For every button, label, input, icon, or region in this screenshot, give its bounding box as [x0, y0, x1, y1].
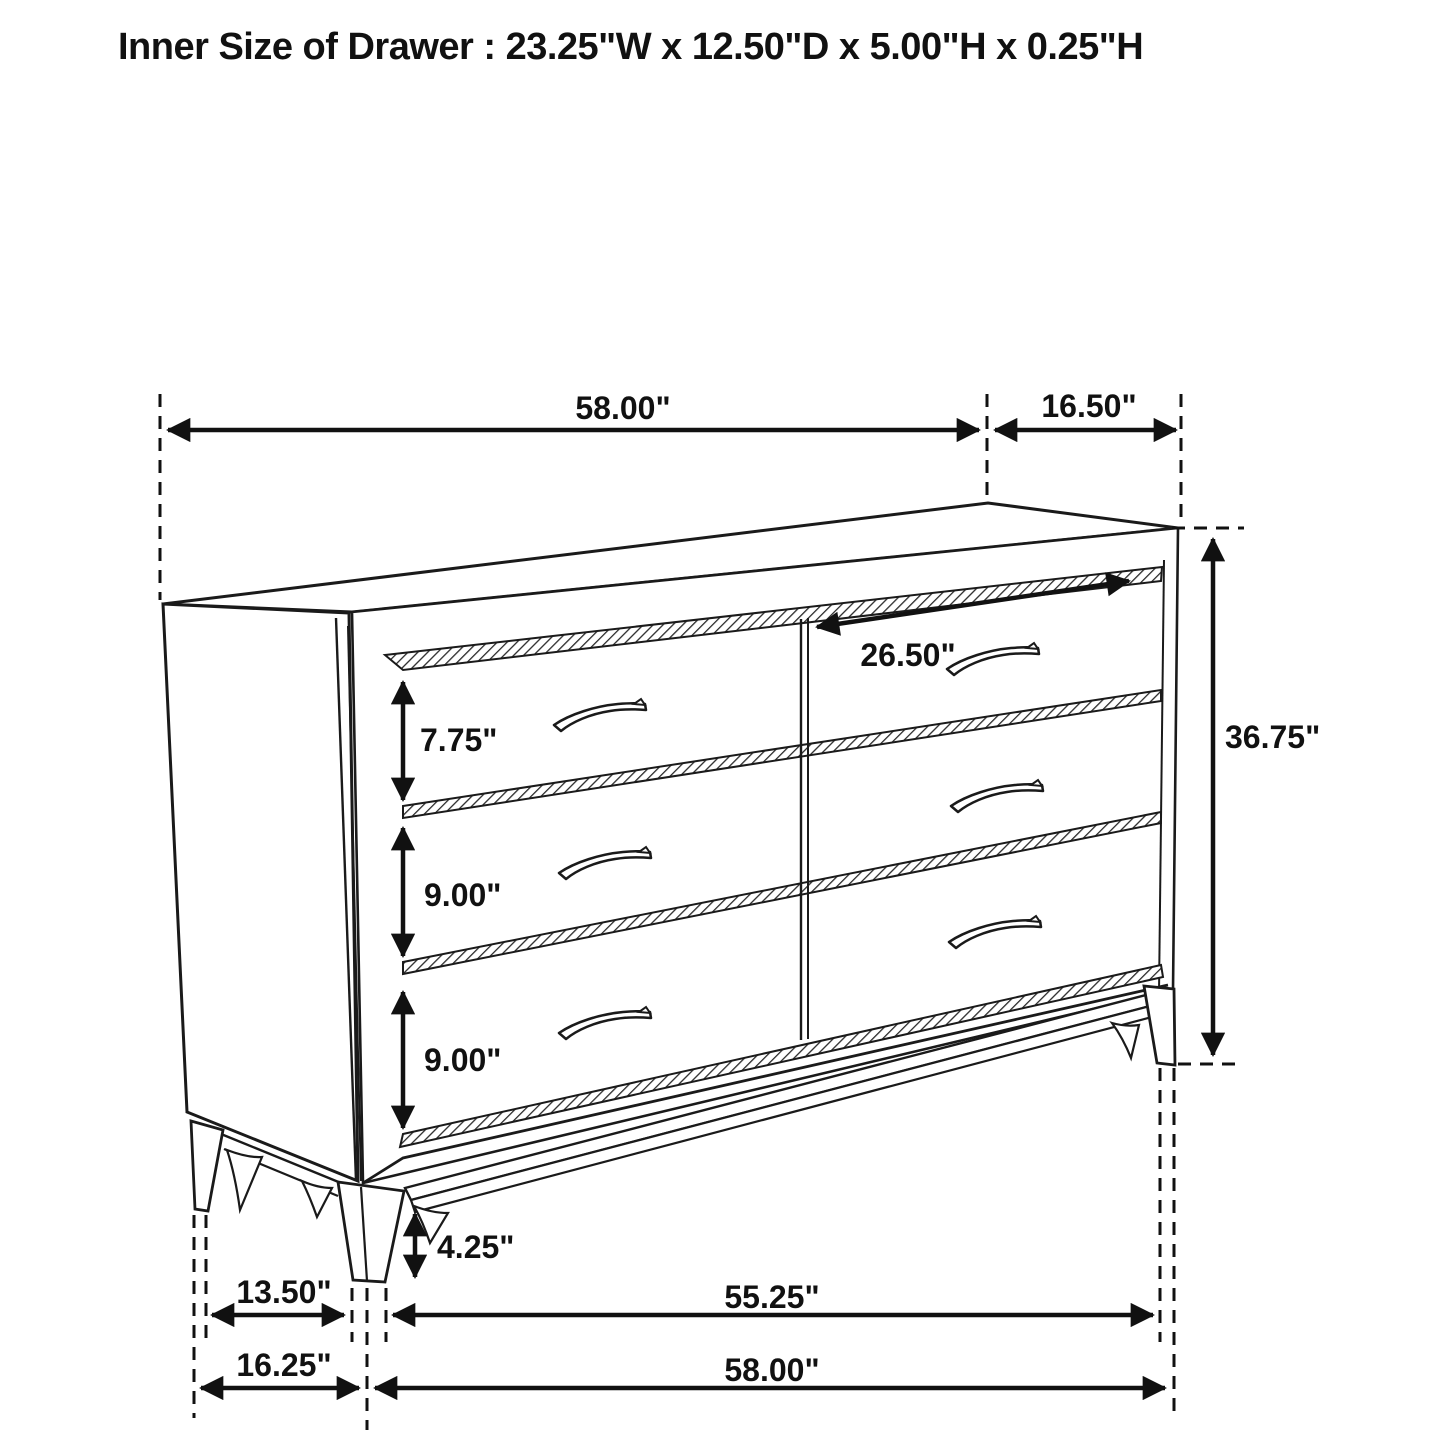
- leg-front-left: [338, 1182, 404, 1282]
- dim-base-width-outer-label: 58.00": [724, 1352, 819, 1388]
- dim-leg-height-label: 4.25": [437, 1229, 514, 1265]
- dim-base-depth-inner-label: 13.50": [236, 1274, 331, 1310]
- dim-drawer-width-label: 26.50": [860, 637, 955, 673]
- leg-front-right: [1144, 986, 1175, 1065]
- corbel: [1112, 1023, 1139, 1058]
- dresser-drawing: [163, 503, 1178, 1282]
- corbel: [302, 1181, 332, 1217]
- dim-overall-height-label: 36.75": [1225, 719, 1320, 755]
- page-title: Inner Size of Drawer : 23.25"W x 12.50"D…: [118, 26, 1143, 68]
- dim-drawer3-height-label: 9.00": [424, 1042, 501, 1078]
- dresser-dimension-diagram: Inner Size of Drawer : 23.25"W x 12.50"D…: [0, 0, 1445, 1445]
- dim-drawer2-height-label: 9.00": [424, 877, 501, 913]
- dim-top-width-label: 58.00": [575, 390, 670, 426]
- dim-drawer1-height-label: 7.75": [420, 722, 497, 758]
- leg-back-left: [191, 1121, 223, 1211]
- dim-base-depth-outer-label: 16.25": [236, 1347, 331, 1383]
- left-side-panel: [163, 604, 358, 1181]
- diagram-page: Inner Size of Drawer : 23.25"W x 12.50"D…: [0, 0, 1445, 1445]
- corbel: [227, 1150, 262, 1210]
- dim-base-width-inner-label: 55.25": [724, 1279, 819, 1315]
- dim-top-depth-label: 16.50": [1041, 388, 1136, 424]
